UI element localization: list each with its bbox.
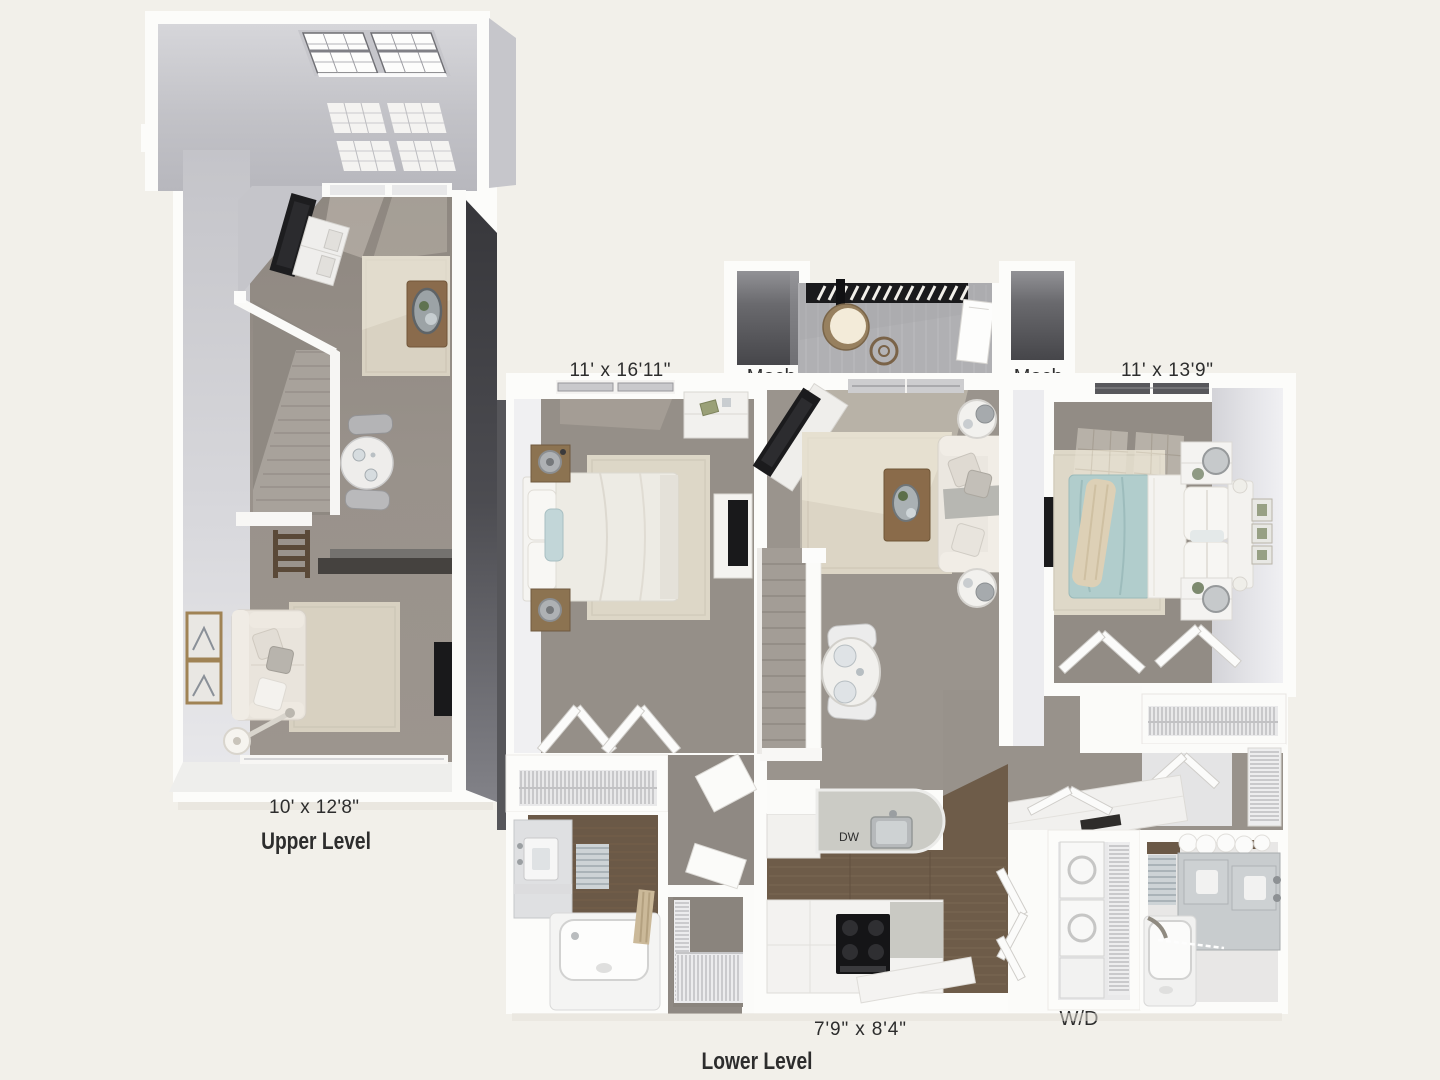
svg-text:11' x 13'9": 11' x 13'9" (1121, 360, 1213, 381)
svg-text:Lower Level: Lower Level (702, 1047, 813, 1075)
svg-text:10' x 12'8": 10' x 12'8" (269, 797, 359, 818)
svg-text:Upper Level: Upper Level (261, 827, 371, 855)
svg-text:DW: DW (839, 830, 860, 844)
svg-text:7'9" x 8'4": 7'9" x 8'4" (814, 1019, 906, 1040)
svg-text:11' x 16'11": 11' x 16'11" (570, 360, 671, 381)
